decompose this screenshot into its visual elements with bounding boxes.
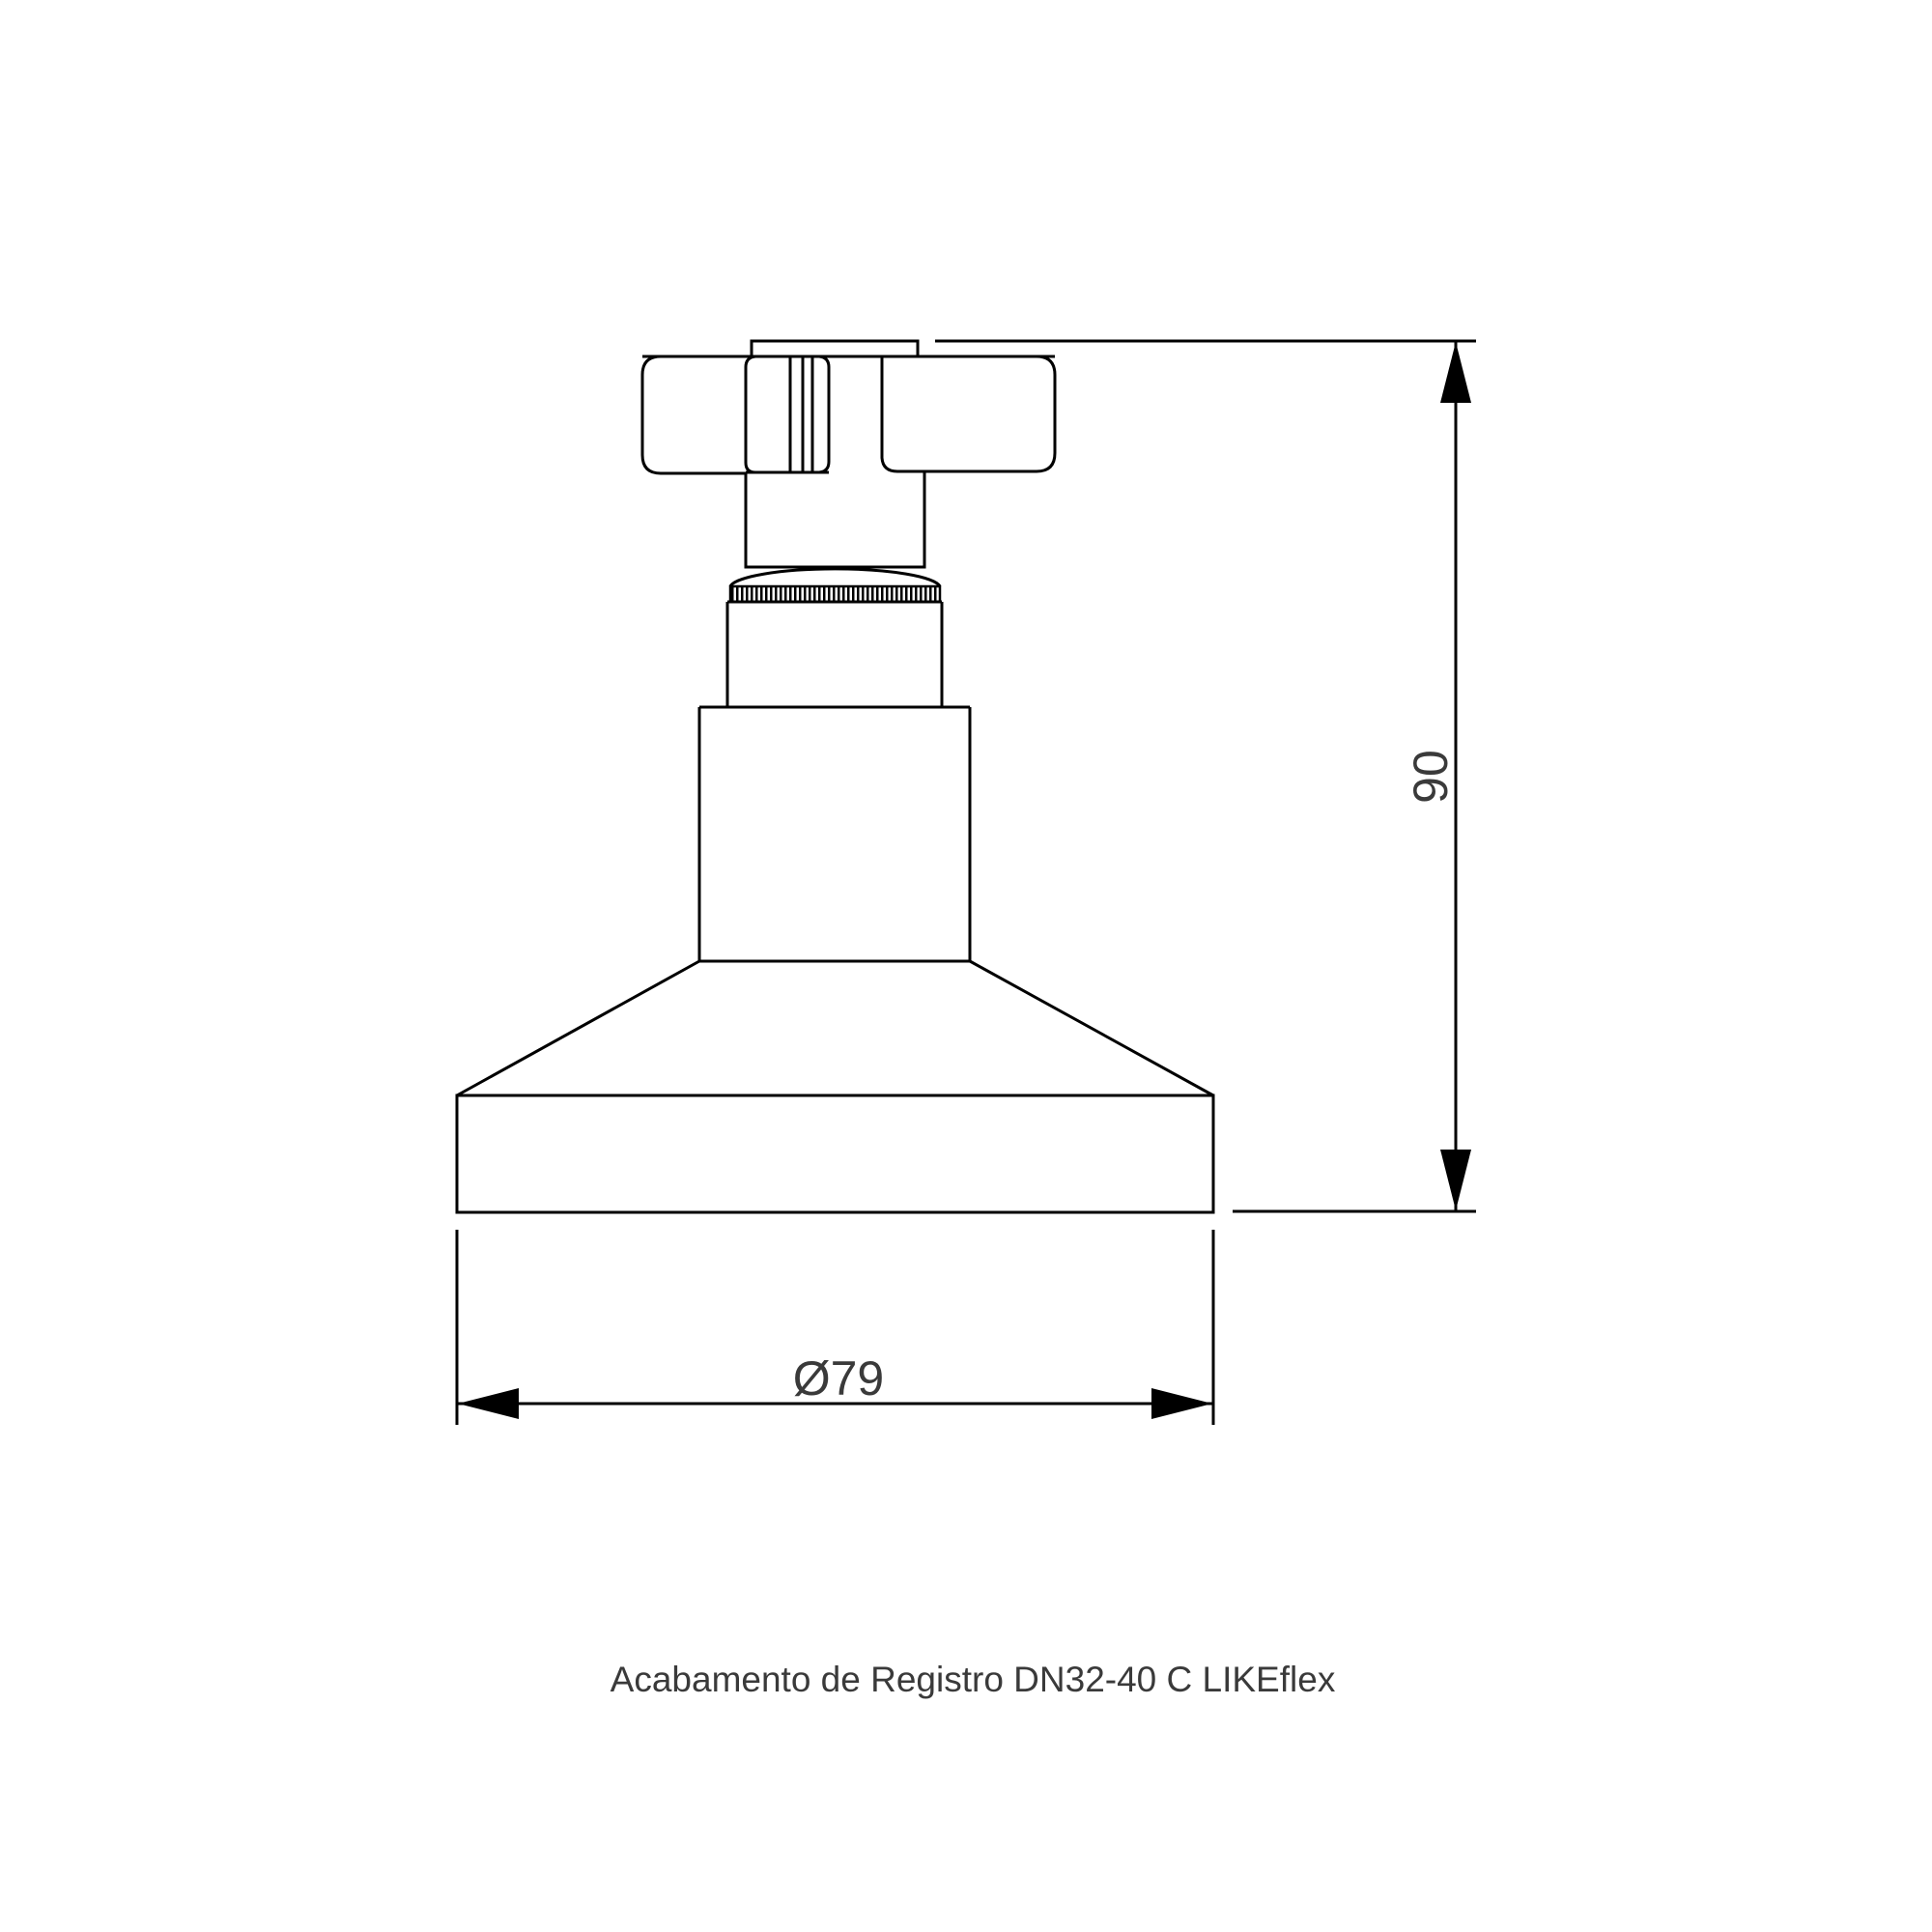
handle-left-arm [642,356,746,473]
handle-right-arm [882,356,1055,471]
cone-right-edge [970,961,1213,1095]
upper-cylinder [727,602,942,707]
body-group [699,602,970,961]
diameter-dimension-value: Ø79 [793,1351,885,1406]
handle-top-plate [752,341,918,356]
diameter-arrow-right-icon [1151,1388,1212,1419]
flange-group [457,961,1213,1212]
cone-left-edge [457,961,699,1095]
page: 90 Ø79 Acabamento de Registro DN32-40 C … [0,0,1932,1932]
handle-center-column-left-edge [746,356,755,472]
handle-center-column-right-edge [819,356,829,472]
diameter-arrow-left-icon [458,1388,519,1419]
height-arrow-down-icon [1440,1150,1471,1210]
height-dimension-value: 90 [1404,750,1458,804]
handle-group [642,341,1055,567]
knurled-ring-group [730,569,940,602]
handle-stem [746,471,924,567]
lower-cylinder [699,707,970,961]
knurled-ring-dome-arc [730,569,940,586]
drawing-caption: Acabamento de Registro DN32-40 C LIKEfle… [611,1660,1336,1699]
dimension-diameter: Ø79 [457,1230,1213,1425]
height-arrow-up-icon [1440,342,1471,403]
technical-drawing: 90 Ø79 Acabamento de Registro DN32-40 C … [0,0,1932,1932]
flange-base [457,1095,1213,1212]
knurled-ring-teeth [730,586,940,602]
